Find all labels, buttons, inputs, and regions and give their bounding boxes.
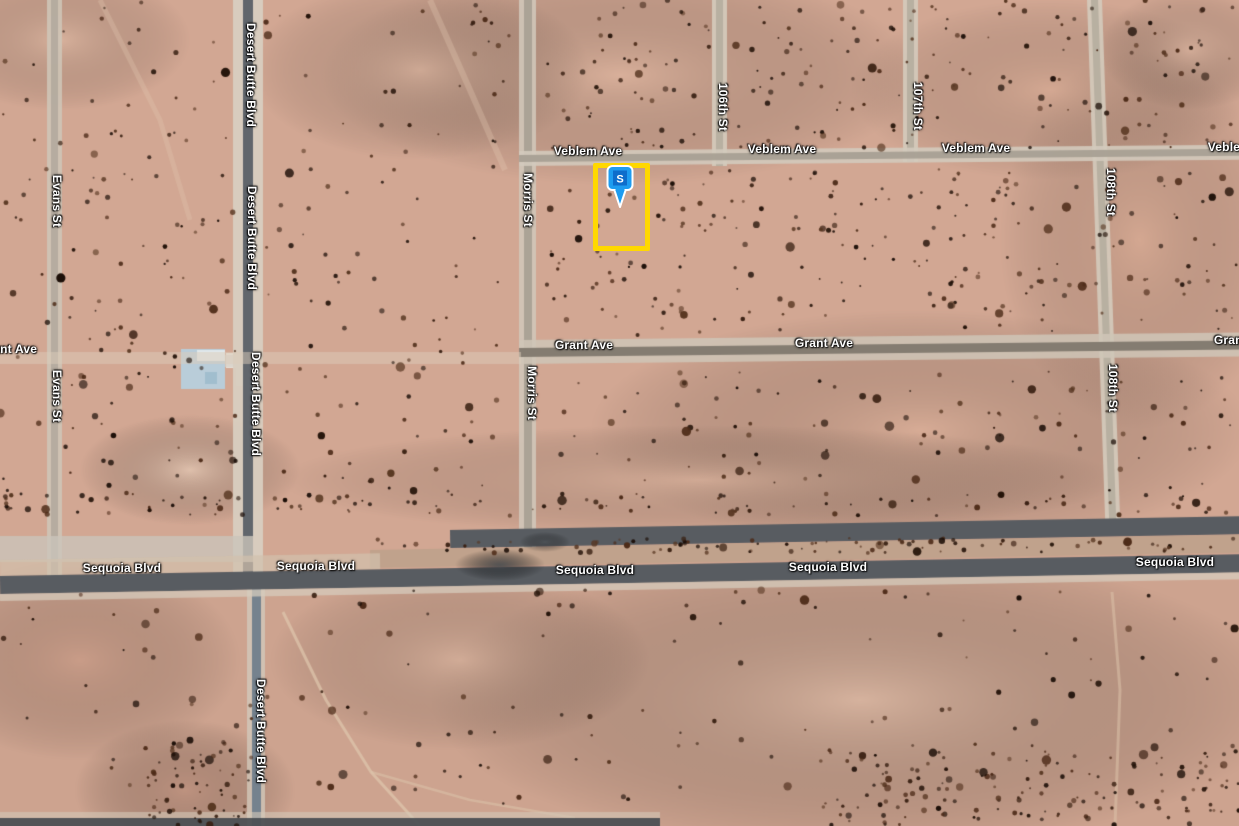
satellite-map[interactable]: Evans StEvans StDesert Butte BlvdDesert … [0, 0, 1239, 826]
pin-seam [616, 186, 625, 191]
property-marker-pin[interactable]: S [604, 164, 636, 212]
pin-letter: S [616, 174, 623, 186]
satellite-imagery [0, 0, 1239, 826]
pin-pointer [614, 189, 626, 207]
